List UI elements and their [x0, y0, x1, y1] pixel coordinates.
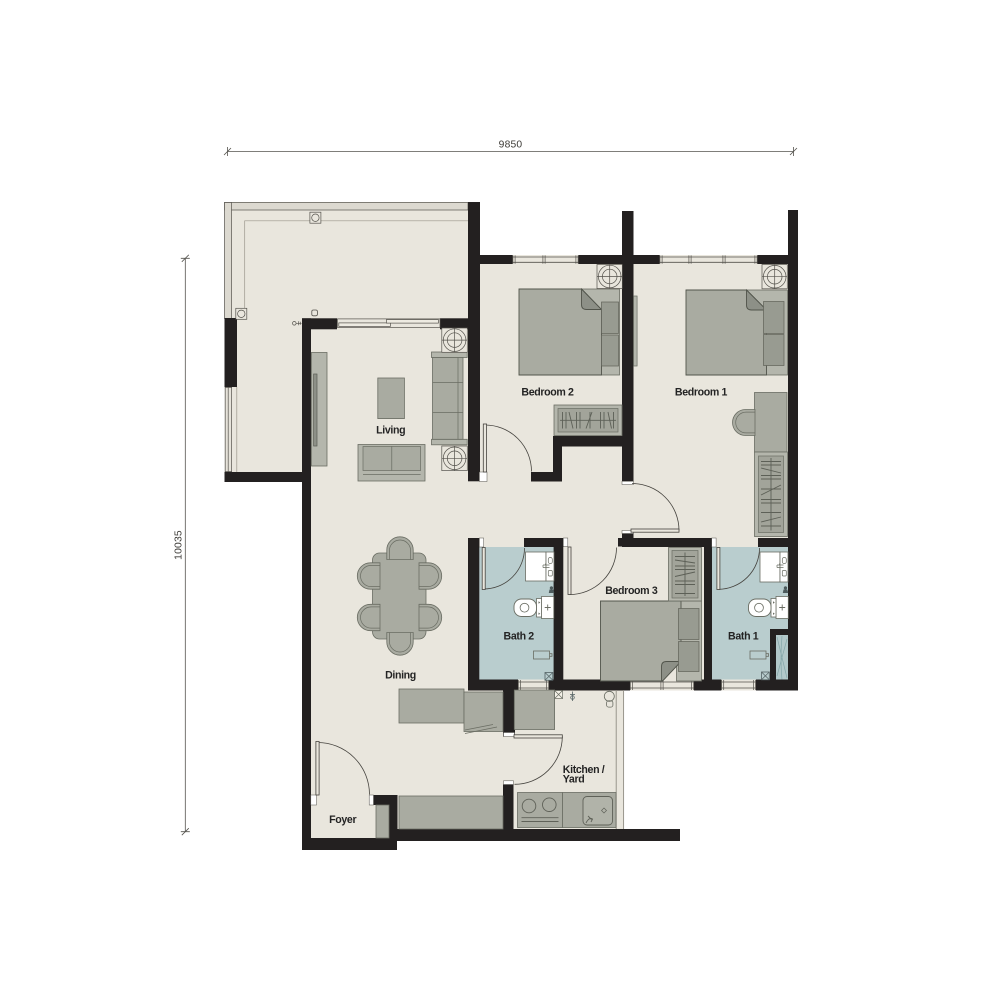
svg-text:Bedroom 1: Bedroom 1 [675, 387, 728, 399]
svg-text:Dining: Dining [385, 669, 416, 681]
svg-text:Foyer: Foyer [329, 814, 356, 826]
svg-text:Bedroom 2: Bedroom 2 [521, 387, 574, 399]
svg-text:Bedroom 3: Bedroom 3 [605, 585, 658, 597]
svg-text:Bath 1: Bath 1 [728, 631, 759, 643]
svg-text:Yard: Yard [563, 773, 585, 785]
svg-text:Bath 2: Bath 2 [504, 631, 535, 643]
svg-text:9850: 9850 [499, 140, 523, 151]
svg-text:Living: Living [376, 425, 405, 437]
svg-text:10035: 10035 [174, 530, 185, 560]
